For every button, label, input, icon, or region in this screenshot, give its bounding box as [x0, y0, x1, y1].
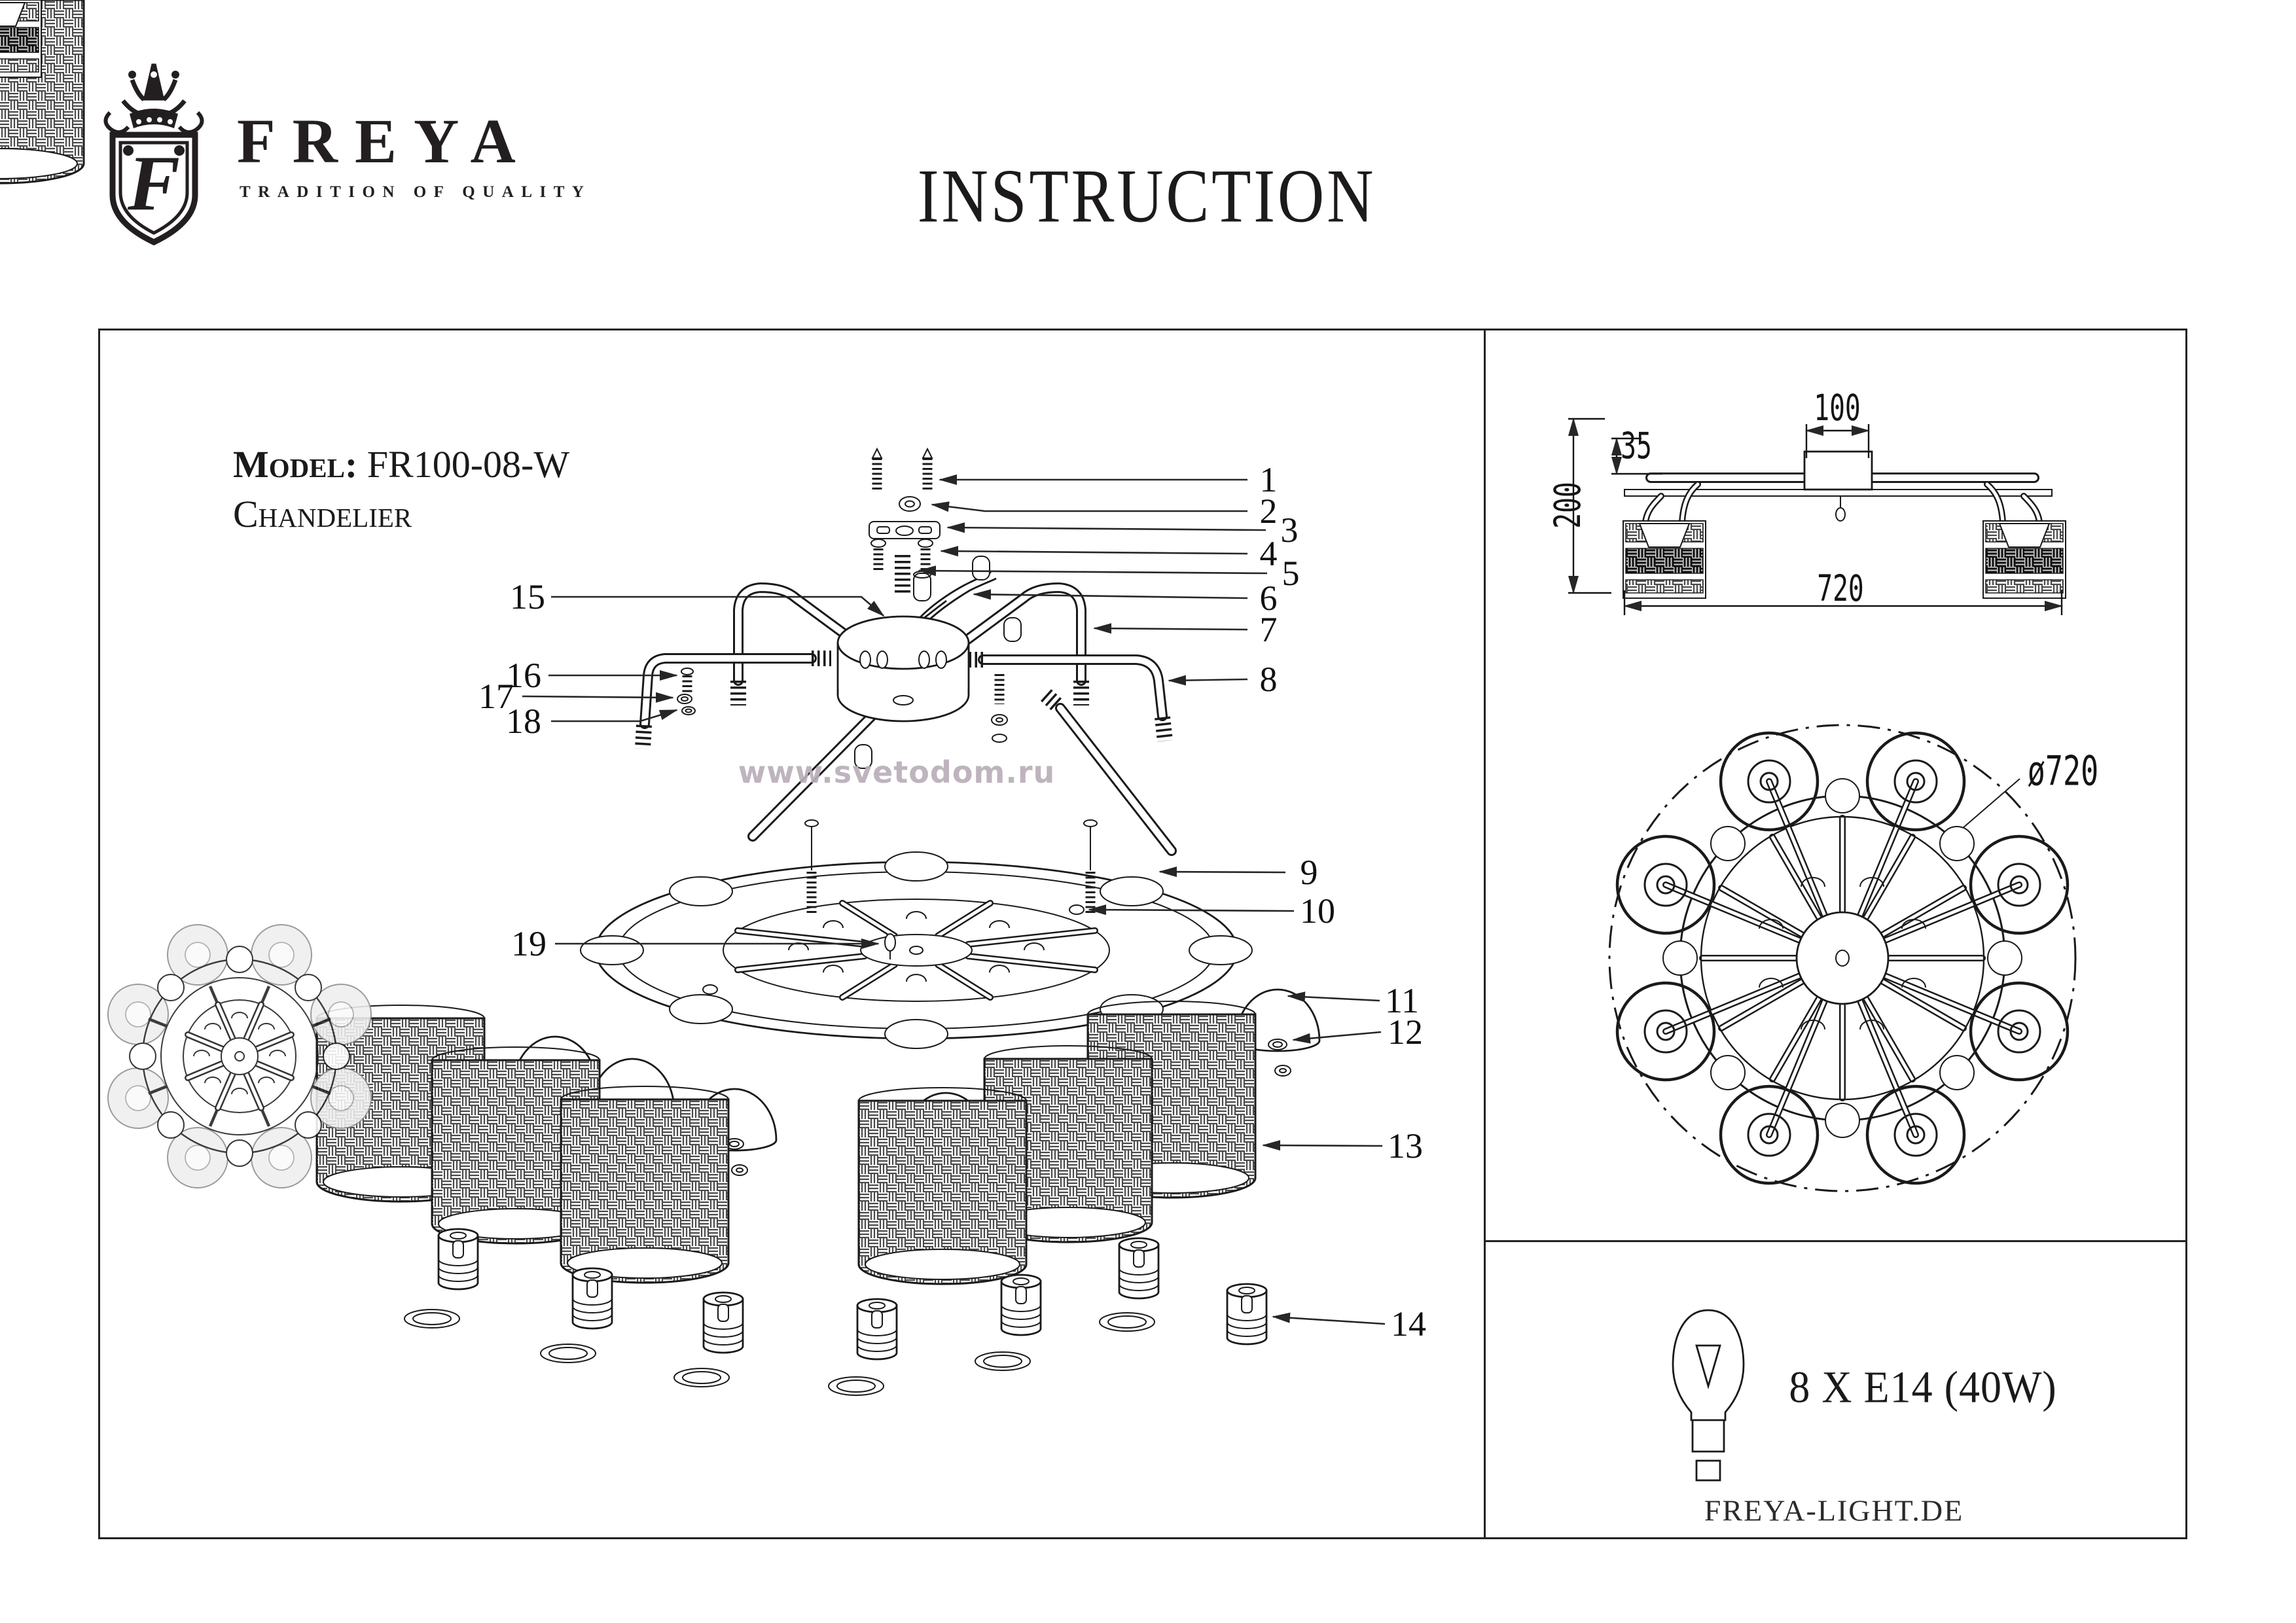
- part-callout-15: 15: [510, 579, 545, 615]
- dim-canopy-drop: 35: [1621, 425, 1652, 467]
- part-callout-5: 5: [1282, 556, 1300, 591]
- part-callout-19: 19: [511, 926, 547, 961]
- svg-text:F: F: [127, 139, 180, 226]
- panel-divider-vertical: [1484, 329, 1486, 1539]
- dim-fixture-width: 720: [1817, 568, 1864, 610]
- instruction-sheet: .ln{stroke:#1a1a1a;stroke-width:2.8;fill…: [0, 0, 2296, 1623]
- watermark: www.svetodom.ru: [738, 755, 1056, 790]
- dim-fixture-height: 200: [1547, 482, 1589, 529]
- brand-tagline: TRADITION OF QUALITY: [240, 183, 591, 202]
- model-line: Model: FR100-08-W: [233, 442, 569, 486]
- part-callout-4: 4: [1260, 536, 1278, 571]
- lamp-spec: 8 X E14 (40W): [1789, 1361, 2056, 1414]
- part-callout-13: 13: [1388, 1128, 1423, 1164]
- part-callout-7: 7: [1260, 612, 1278, 647]
- part-callout-2: 2: [1260, 493, 1278, 529]
- part-callout-3: 3: [1281, 512, 1299, 548]
- part-callout-8: 8: [1260, 662, 1278, 697]
- dim-canopy-width: 100: [1814, 387, 1861, 429]
- website: FREYA-LIGHT.DE: [1704, 1493, 1964, 1528]
- freya-crest-icon: F: [105, 64, 202, 242]
- panel-divider-horizontal: [1486, 1240, 2185, 1242]
- product-type: Chandelier: [233, 492, 412, 536]
- dim-diameter: ø720: [2028, 747, 2098, 795]
- model-number: FR100-08-W: [367, 443, 569, 486]
- model-label: Model:: [233, 443, 357, 486]
- brand-name: FREYA: [237, 105, 533, 177]
- part-callout-18: 18: [506, 704, 541, 739]
- part-callout-12: 12: [1388, 1014, 1423, 1050]
- part-callout-10: 10: [1300, 893, 1335, 929]
- part-callout-14: 14: [1391, 1306, 1426, 1342]
- page-title: INSTRUCTION: [918, 152, 1376, 240]
- part-callout-9: 9: [1300, 855, 1318, 890]
